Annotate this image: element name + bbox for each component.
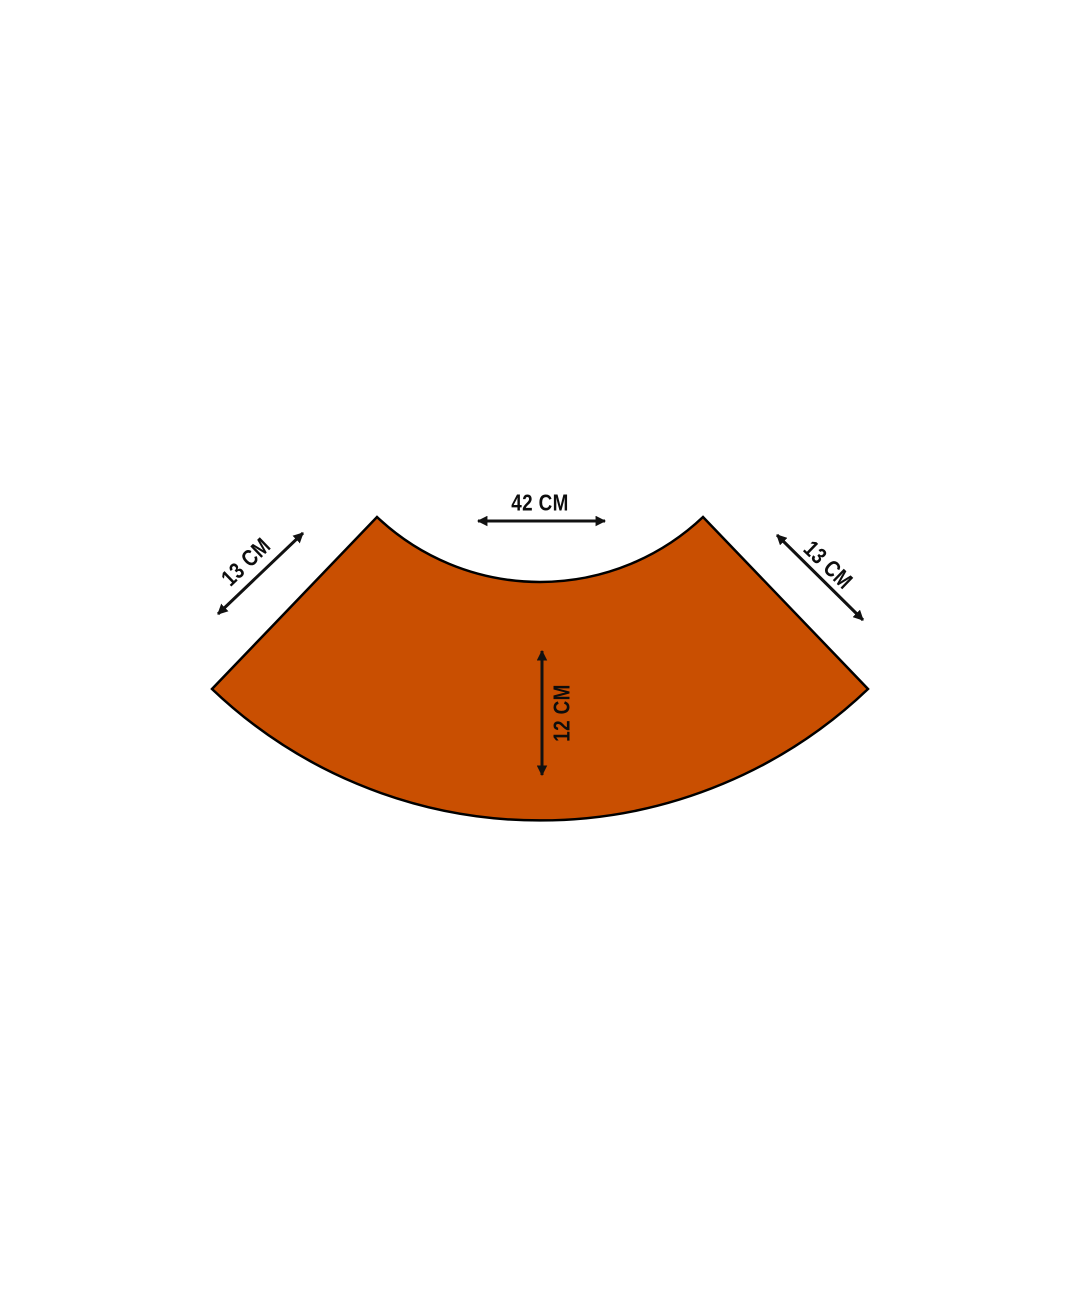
curved-band-pattern-shape xyxy=(212,517,868,820)
band-height-dimension-label: 12 CM xyxy=(551,684,574,742)
pattern-diagram-canvas: 42 CM 13 CM 13 CM 12 CM xyxy=(0,0,1080,1314)
top-width-dimension-label: 42 CM xyxy=(511,492,569,515)
pattern-diagram-svg xyxy=(0,0,1080,1314)
